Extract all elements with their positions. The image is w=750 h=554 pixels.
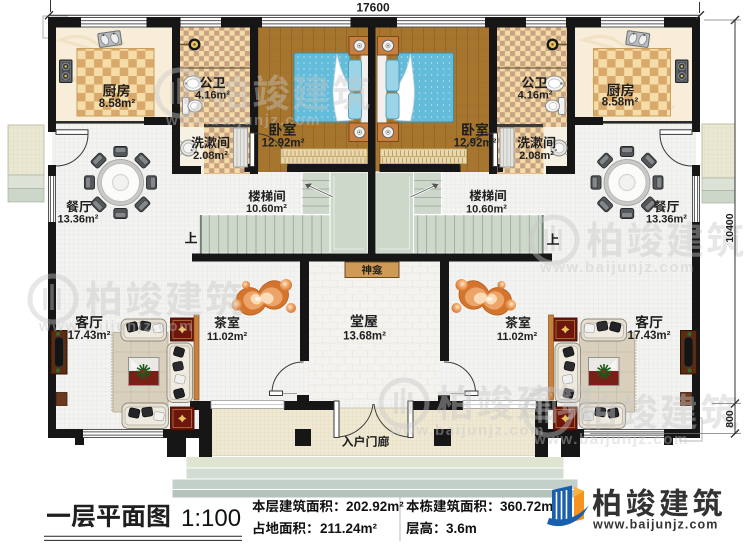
svg-text:2.08m²: 2.08m²: [519, 150, 554, 162]
svg-text:8.58m²: 8.58m²: [602, 97, 639, 109]
svg-text:10400: 10400: [724, 213, 736, 242]
svg-text:3.6m: 3.6m: [446, 521, 477, 536]
svg-text:www.baijunjz.com: www.baijunjz.com: [165, 112, 321, 129]
svg-text:17.43m²: 17.43m²: [68, 330, 111, 342]
svg-text:11.02m²: 11.02m²: [497, 331, 538, 343]
svg-text:www.baijunjz.com: www.baijunjz.com: [592, 518, 718, 532]
svg-text:4.16m²: 4.16m²: [518, 89, 553, 101]
svg-text:13.36m²: 13.36m²: [646, 213, 687, 225]
svg-text:17.43m²: 17.43m²: [628, 330, 671, 342]
svg-text:www.baijunjz.com: www.baijunjz.com: [38, 318, 194, 335]
svg-text:8.58m²: 8.58m²: [99, 98, 136, 110]
svg-text:www.baijunjz.com: www.baijunjz.com: [539, 259, 695, 276]
svg-text:2.08m²: 2.08m²: [193, 150, 228, 162]
svg-text:10.60m²: 10.60m²: [246, 203, 287, 215]
svg-text:13.36m²: 13.36m²: [58, 213, 99, 225]
svg-text:202.92m²: 202.92m²: [346, 499, 404, 514]
svg-text:www.baijunjz.com: www.baijunjz.com: [389, 422, 545, 439]
svg-text:11.02m²: 11.02m²: [207, 331, 248, 343]
svg-text:17600: 17600: [356, 1, 390, 15]
svg-text:10.60m²: 10.60m²: [466, 203, 507, 215]
svg-text:1:100: 1:100: [181, 505, 241, 532]
svg-text:12.92m²: 12.92m²: [454, 138, 497, 150]
svg-text:800: 800: [724, 410, 736, 428]
svg-text:211.24m²: 211.24m²: [320, 521, 378, 536]
svg-text:12.92m²: 12.92m²: [262, 138, 305, 150]
svg-text:13.68m²: 13.68m²: [343, 331, 386, 343]
svg-text:4.16m²: 4.16m²: [195, 89, 230, 101]
svg-text:360.72m²: 360.72m²: [500, 499, 558, 514]
